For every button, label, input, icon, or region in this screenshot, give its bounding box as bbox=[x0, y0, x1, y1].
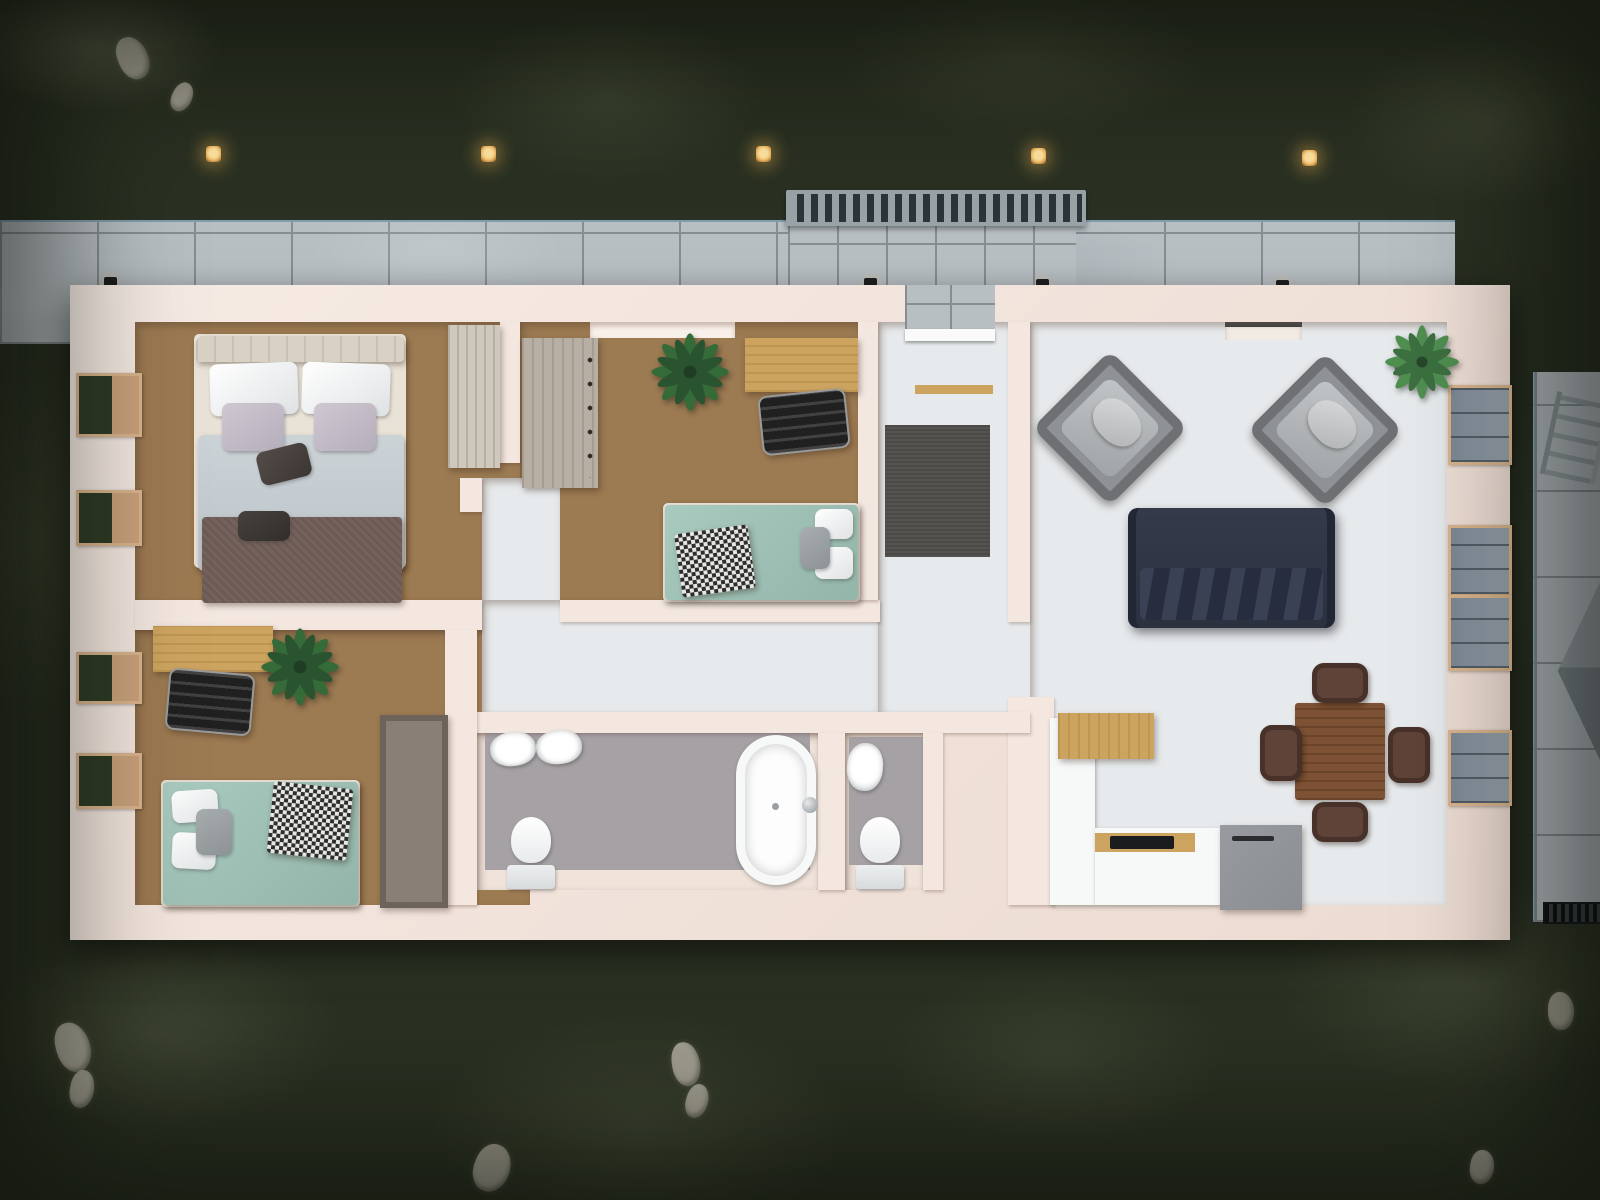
headboard bbox=[196, 336, 404, 362]
potted-plant bbox=[254, 621, 346, 713]
window bbox=[1448, 525, 1512, 597]
stone bbox=[50, 1018, 96, 1075]
garden-light bbox=[1031, 148, 1046, 164]
bathtub-drain bbox=[772, 803, 779, 810]
front-door bbox=[905, 329, 995, 341]
dining-table bbox=[1295, 703, 1385, 800]
accent-cushion bbox=[314, 403, 376, 451]
wall bbox=[923, 733, 943, 890]
wall bbox=[818, 733, 845, 890]
bathtub bbox=[736, 735, 816, 885]
garden-light bbox=[756, 146, 771, 162]
dining-chair bbox=[1312, 663, 1368, 703]
window bbox=[1448, 730, 1512, 806]
window bbox=[76, 373, 142, 437]
foot-blanket bbox=[202, 517, 402, 603]
wall bbox=[858, 322, 878, 600]
stone bbox=[66, 1068, 97, 1110]
desk bbox=[745, 338, 858, 392]
wardrobe bbox=[380, 715, 448, 908]
dresser-handles bbox=[586, 348, 594, 478]
stone bbox=[1548, 992, 1574, 1030]
accent-cushion bbox=[222, 403, 284, 451]
toilet-bowl bbox=[860, 817, 900, 863]
door-threshold-strip bbox=[915, 385, 993, 394]
window bbox=[76, 652, 142, 704]
toilet-tank bbox=[856, 865, 904, 889]
west-walkway-stub bbox=[0, 286, 73, 344]
houndstooth-throw bbox=[674, 524, 756, 598]
wall bbox=[500, 322, 520, 463]
grey-cushion bbox=[196, 809, 232, 855]
dining-chair bbox=[1388, 727, 1430, 783]
house bbox=[70, 285, 1510, 940]
wall bbox=[560, 600, 880, 622]
bathtub-basin bbox=[745, 744, 807, 876]
toilet bbox=[856, 817, 904, 889]
entry-threshold-tiles bbox=[905, 285, 995, 335]
sofa-back-cushions bbox=[1140, 568, 1323, 620]
wall bbox=[1008, 322, 1030, 622]
grill-rack bbox=[1543, 902, 1600, 924]
window bbox=[1448, 595, 1512, 671]
toilet bbox=[507, 817, 557, 889]
stone bbox=[681, 1081, 712, 1120]
houndstooth-throw bbox=[266, 781, 353, 861]
sofa bbox=[1128, 508, 1335, 628]
north-window-recess bbox=[1225, 322, 1302, 340]
cooktop bbox=[1110, 836, 1174, 849]
north-walkway bbox=[0, 220, 1455, 292]
garden-light bbox=[206, 146, 221, 162]
dining-chair bbox=[1312, 802, 1368, 842]
garden-light bbox=[481, 146, 496, 162]
passage-floor bbox=[1008, 622, 1030, 700]
wall bbox=[460, 712, 1030, 733]
stone bbox=[466, 1139, 517, 1197]
toilet-tank bbox=[507, 865, 555, 889]
stone bbox=[1467, 1148, 1497, 1186]
stone bbox=[166, 79, 198, 115]
window bbox=[76, 490, 142, 546]
dresser bbox=[522, 338, 598, 488]
dining-chair bbox=[1260, 725, 1302, 781]
stone bbox=[111, 32, 155, 84]
bathtub-faucet bbox=[802, 797, 818, 813]
island-handle bbox=[1232, 836, 1274, 841]
office-chair bbox=[757, 388, 851, 457]
wardrobe bbox=[448, 325, 500, 468]
dark-pillow bbox=[238, 511, 290, 541]
wall bbox=[460, 478, 482, 512]
toilet-bowl bbox=[511, 817, 551, 863]
grey-cushion bbox=[800, 527, 830, 569]
window bbox=[76, 753, 142, 809]
entry-rug bbox=[885, 425, 990, 557]
office-chair bbox=[164, 667, 255, 736]
pergola bbox=[786, 190, 1086, 226]
wall bbox=[445, 630, 477, 905]
breakfast-bar bbox=[1058, 713, 1154, 759]
garden-light bbox=[1302, 150, 1317, 166]
floor-plan-render bbox=[0, 0, 1600, 1200]
potted-plant bbox=[1376, 316, 1468, 408]
stone bbox=[669, 1040, 703, 1087]
potted-plant bbox=[644, 326, 736, 418]
